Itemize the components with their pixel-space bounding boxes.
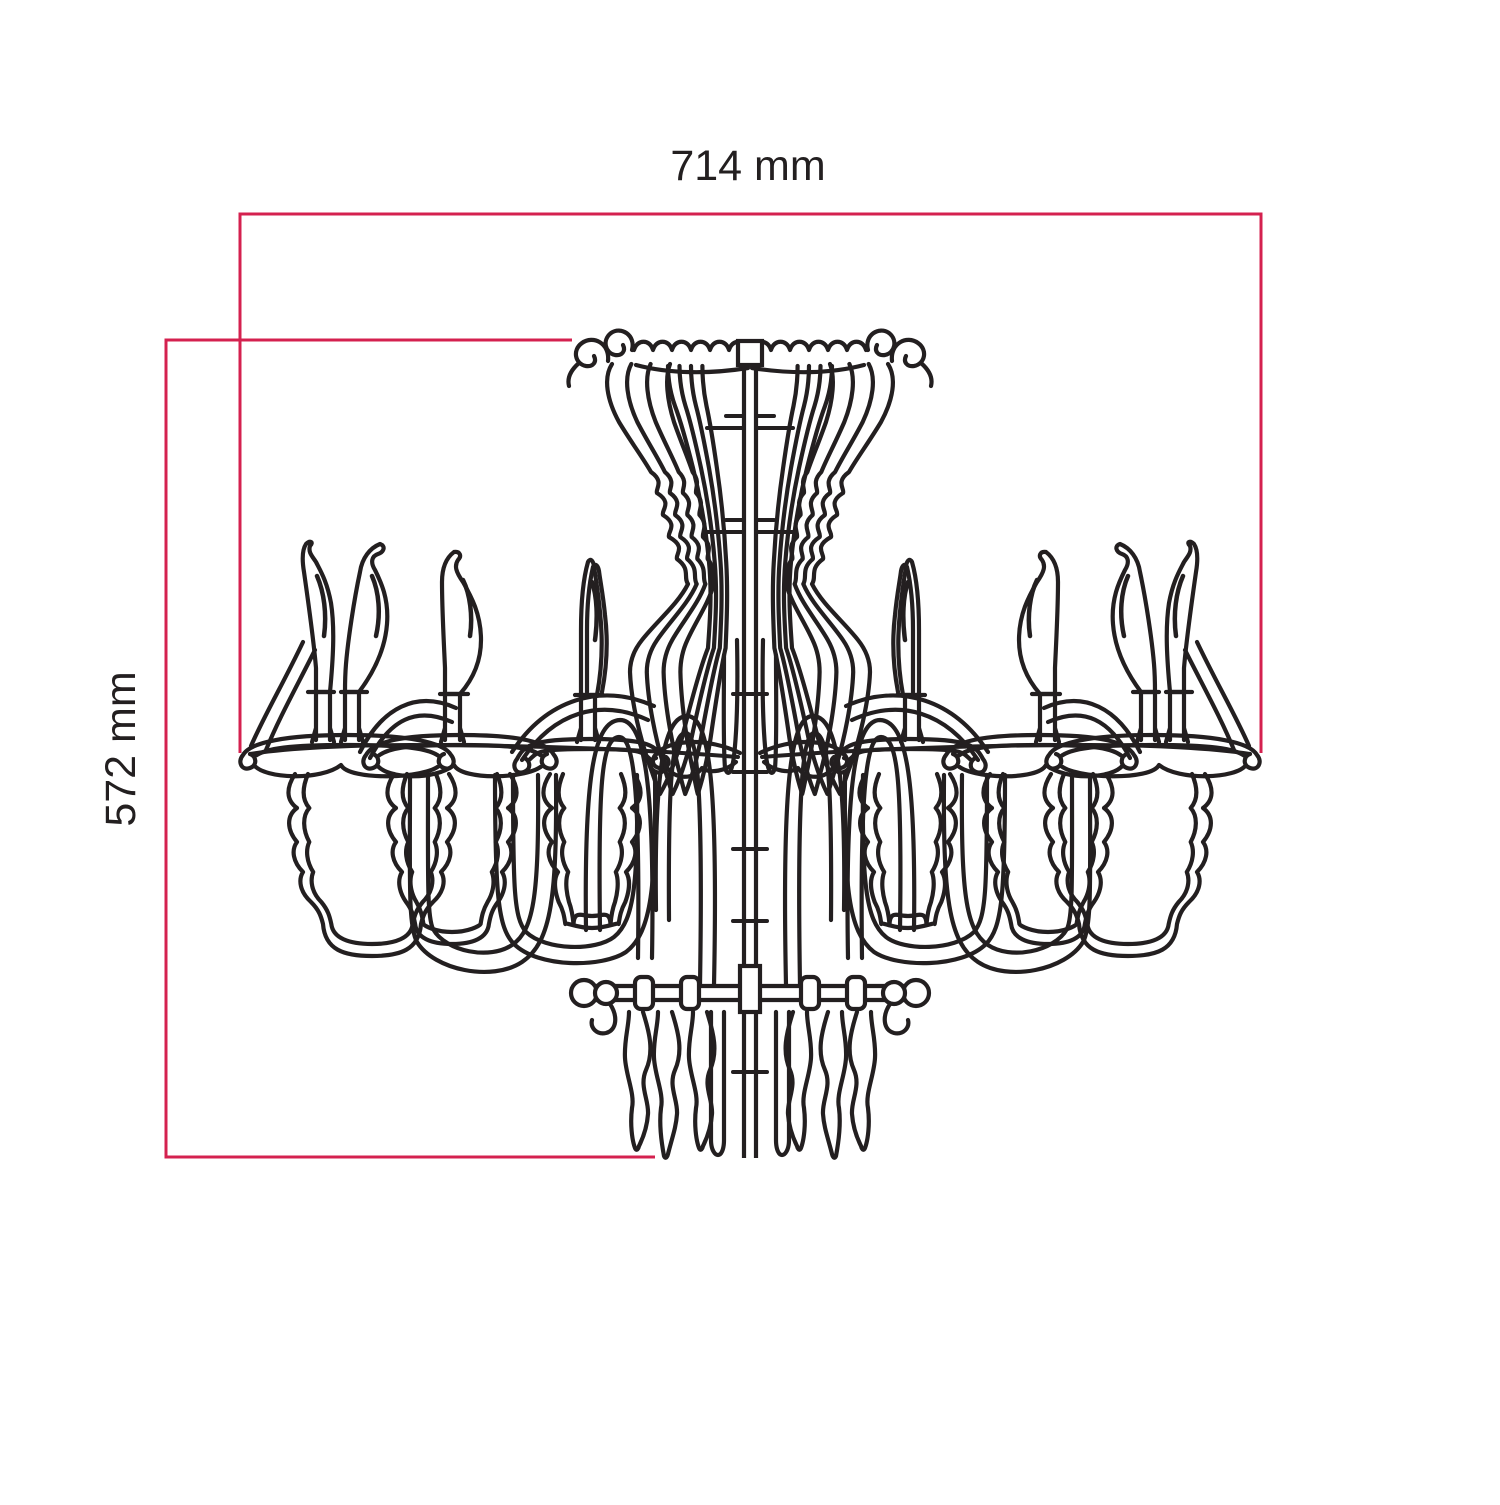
svg-text:572 mm: 572 mm [97,671,145,826]
svg-text:714 mm: 714 mm [670,142,825,190]
